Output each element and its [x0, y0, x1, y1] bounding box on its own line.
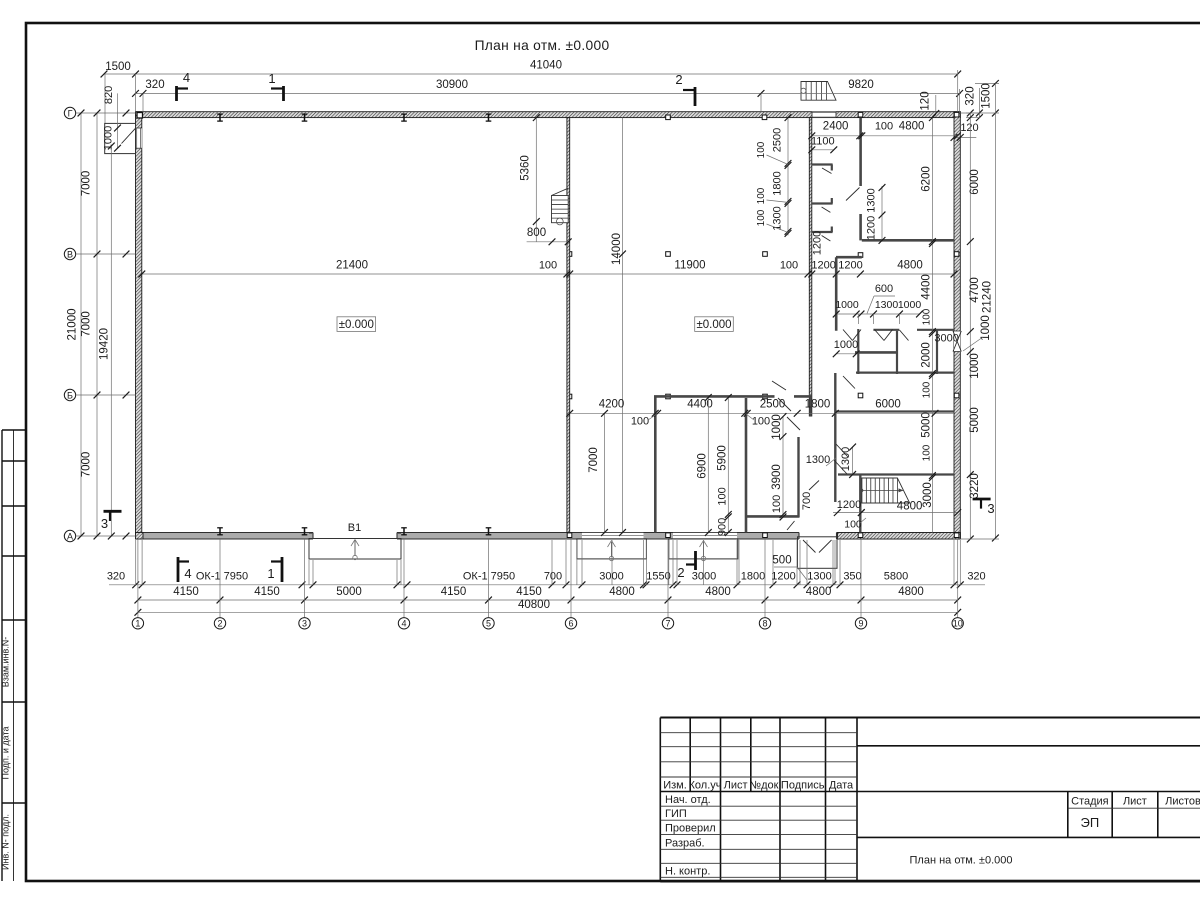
svg-text:1300: 1300: [840, 447, 852, 471]
svg-text:9: 9: [858, 619, 863, 629]
svg-text:3: 3: [302, 619, 307, 629]
svg-text:1800: 1800: [741, 570, 765, 582]
svg-text:5900: 5900: [717, 445, 729, 471]
svg-text:7000: 7000: [81, 452, 93, 478]
svg-text:Инв. N- подл.: Инв. N- подл.: [1, 814, 11, 870]
svg-text:1200: 1200: [811, 260, 835, 272]
svg-text:7: 7: [665, 619, 670, 629]
svg-text:100: 100: [756, 209, 767, 226]
svg-text:Проверил: Проверил: [665, 823, 716, 835]
svg-text:4800: 4800: [897, 501, 923, 513]
svg-text:Н. контр.: Н. контр.: [665, 865, 710, 877]
svg-text:±0.000: ±0.000: [696, 319, 731, 331]
svg-text:100: 100: [780, 260, 798, 272]
svg-text:3000: 3000: [922, 482, 934, 508]
svg-text:320: 320: [107, 570, 125, 582]
svg-text:21400: 21400: [336, 260, 368, 272]
svg-text:1000: 1000: [898, 299, 922, 311]
svg-text:В: В: [67, 249, 73, 259]
svg-text:820: 820: [103, 86, 115, 104]
svg-text:4150: 4150: [441, 586, 467, 598]
svg-text:4400: 4400: [921, 274, 933, 300]
svg-text:320: 320: [967, 570, 985, 582]
svg-text:100: 100: [539, 260, 557, 272]
svg-text:700: 700: [544, 570, 562, 582]
svg-text:100: 100: [922, 444, 933, 461]
svg-text:600: 600: [875, 283, 893, 295]
svg-text:5: 5: [486, 619, 491, 629]
svg-text:1: 1: [135, 619, 140, 629]
svg-text:2400: 2400: [823, 120, 849, 132]
svg-text:14000: 14000: [611, 233, 623, 265]
svg-text:4800: 4800: [897, 260, 923, 272]
svg-text:1200: 1200: [838, 260, 862, 272]
svg-text:5800: 5800: [884, 570, 908, 582]
svg-text:Лист: Лист: [1123, 795, 1147, 807]
svg-text:4200: 4200: [599, 398, 625, 410]
svg-text:4800: 4800: [899, 120, 925, 132]
svg-text:1000: 1000: [969, 353, 981, 379]
svg-text:1200: 1200: [812, 231, 824, 255]
svg-text:4150: 4150: [254, 586, 280, 598]
svg-text:800: 800: [527, 227, 546, 239]
svg-text:320: 320: [965, 86, 977, 105]
svg-text:1: 1: [267, 566, 274, 581]
svg-text:700: 700: [801, 492, 813, 510]
svg-text:1500: 1500: [981, 83, 993, 109]
svg-text:1300: 1300: [772, 206, 784, 230]
svg-text:Дата: Дата: [829, 779, 854, 791]
svg-text:500: 500: [772, 555, 791, 567]
svg-text:4800: 4800: [898, 586, 924, 598]
svg-text:10: 10: [953, 619, 963, 629]
svg-text:41040: 41040: [530, 60, 562, 72]
svg-text:100: 100: [875, 120, 893, 132]
svg-text:7000: 7000: [81, 171, 93, 197]
svg-text:2500: 2500: [772, 128, 784, 152]
svg-text:Взам.инв.N-: Взам.инв.N-: [1, 637, 11, 688]
svg-text:5000: 5000: [921, 412, 933, 438]
svg-text:1300: 1300: [807, 570, 831, 582]
svg-text:5000: 5000: [969, 407, 981, 433]
svg-text:100: 100: [756, 141, 767, 158]
svg-text:19420: 19420: [99, 328, 111, 360]
svg-text:100: 100: [756, 187, 767, 204]
svg-text:9820: 9820: [848, 79, 874, 91]
svg-text:3: 3: [987, 501, 994, 516]
svg-text:2: 2: [677, 565, 684, 580]
svg-text:ОК-1 7950: ОК-1 7950: [196, 570, 248, 582]
svg-text:Разраб.: Разраб.: [665, 837, 705, 849]
svg-text:Стадия: Стадия: [1071, 795, 1109, 807]
svg-text:4800: 4800: [806, 586, 832, 598]
svg-text:5360: 5360: [520, 155, 532, 181]
svg-text:120: 120: [920, 91, 932, 110]
svg-text:1000: 1000: [103, 126, 115, 150]
svg-text:1100: 1100: [811, 135, 835, 147]
svg-text:1550: 1550: [646, 570, 670, 582]
svg-text:3900: 3900: [771, 464, 783, 490]
svg-text:8: 8: [762, 619, 767, 629]
svg-text:3220: 3220: [969, 473, 981, 499]
svg-text:100: 100: [922, 308, 933, 325]
svg-text:Изм.: Изм.: [663, 779, 687, 791]
svg-text:2: 2: [675, 72, 682, 87]
svg-text:4150: 4150: [173, 586, 199, 598]
svg-text:Г: Г: [68, 108, 73, 118]
svg-text:Кол.уч: Кол.уч: [689, 779, 722, 791]
svg-text:1000: 1000: [834, 339, 858, 351]
svg-text:ГИП: ГИП: [665, 808, 687, 820]
svg-text:3000: 3000: [692, 570, 716, 582]
svg-text:Лист: Лист: [724, 779, 748, 791]
svg-text:1300: 1300: [866, 188, 878, 212]
svg-text:1000: 1000: [835, 299, 859, 311]
svg-text:План на отм. ±0.000: План на отм. ±0.000: [910, 855, 1013, 867]
svg-text:Нач. отд.: Нач. отд.: [665, 794, 711, 806]
svg-text:100: 100: [631, 416, 649, 428]
svg-text:7000: 7000: [81, 311, 93, 337]
svg-text:1300: 1300: [806, 454, 830, 466]
svg-text:6900: 6900: [697, 453, 709, 479]
svg-text:6000: 6000: [969, 169, 981, 195]
svg-text:2000: 2000: [921, 342, 933, 368]
svg-text:6000: 6000: [875, 398, 901, 410]
svg-text:1: 1: [268, 71, 275, 86]
svg-text:6: 6: [568, 619, 573, 629]
svg-text:1200: 1200: [771, 570, 795, 582]
svg-text:120: 120: [960, 122, 978, 134]
svg-text:4150: 4150: [516, 586, 542, 598]
svg-text:4800: 4800: [705, 586, 731, 598]
svg-text:40800: 40800: [518, 599, 550, 611]
svg-text:1000: 1000: [980, 315, 992, 341]
svg-text:3000: 3000: [599, 570, 623, 582]
svg-text:100: 100: [844, 519, 862, 531]
svg-text:21000: 21000: [67, 309, 79, 341]
svg-text:4: 4: [183, 70, 190, 85]
svg-text:А: А: [67, 531, 73, 541]
svg-text:1800: 1800: [805, 398, 831, 410]
svg-text:21240: 21240: [982, 281, 994, 313]
svg-text:2500: 2500: [760, 398, 786, 410]
svg-text:5000: 5000: [336, 586, 362, 598]
svg-text:100: 100: [752, 416, 770, 428]
svg-text:ЭП: ЭП: [1081, 815, 1100, 830]
svg-text:320: 320: [145, 79, 164, 91]
svg-text:11900: 11900: [674, 260, 705, 272]
svg-text:100: 100: [922, 381, 933, 398]
svg-text:Подпись: Подпись: [781, 779, 825, 791]
svg-text:План на отм. ±0.000: План на отм. ±0.000: [475, 38, 610, 53]
svg-text:ОК-1 7950: ОК-1 7950: [463, 570, 515, 582]
svg-text:1800: 1800: [772, 171, 784, 195]
svg-text:Листов: Листов: [1165, 795, 1200, 807]
svg-text:1200: 1200: [837, 499, 861, 511]
svg-text:3: 3: [101, 516, 108, 531]
svg-text:±0.000: ±0.000: [339, 319, 374, 331]
svg-text:3000: 3000: [934, 333, 958, 345]
svg-text:1200: 1200: [866, 216, 878, 240]
svg-text:4: 4: [401, 619, 406, 629]
svg-text:В1: В1: [348, 522, 361, 534]
svg-text:350: 350: [843, 570, 861, 582]
svg-text:30900: 30900: [436, 79, 468, 91]
svg-text:4700: 4700: [969, 277, 981, 303]
svg-text:2: 2: [217, 619, 222, 629]
svg-text:100: 100: [717, 487, 729, 505]
svg-text:4: 4: [184, 566, 191, 581]
svg-text:1500: 1500: [105, 61, 131, 73]
svg-text:100: 100: [771, 495, 783, 513]
svg-text:6200: 6200: [921, 166, 933, 192]
svg-text:7000: 7000: [588, 447, 600, 473]
svg-text:4800: 4800: [609, 586, 635, 598]
svg-text:4400: 4400: [687, 398, 713, 410]
svg-text:1300: 1300: [875, 299, 899, 311]
svg-text:№док.: №док.: [749, 779, 781, 791]
svg-text:Подп. и дата: Подп. и дата: [1, 726, 11, 779]
svg-text:Б: Б: [67, 390, 73, 400]
